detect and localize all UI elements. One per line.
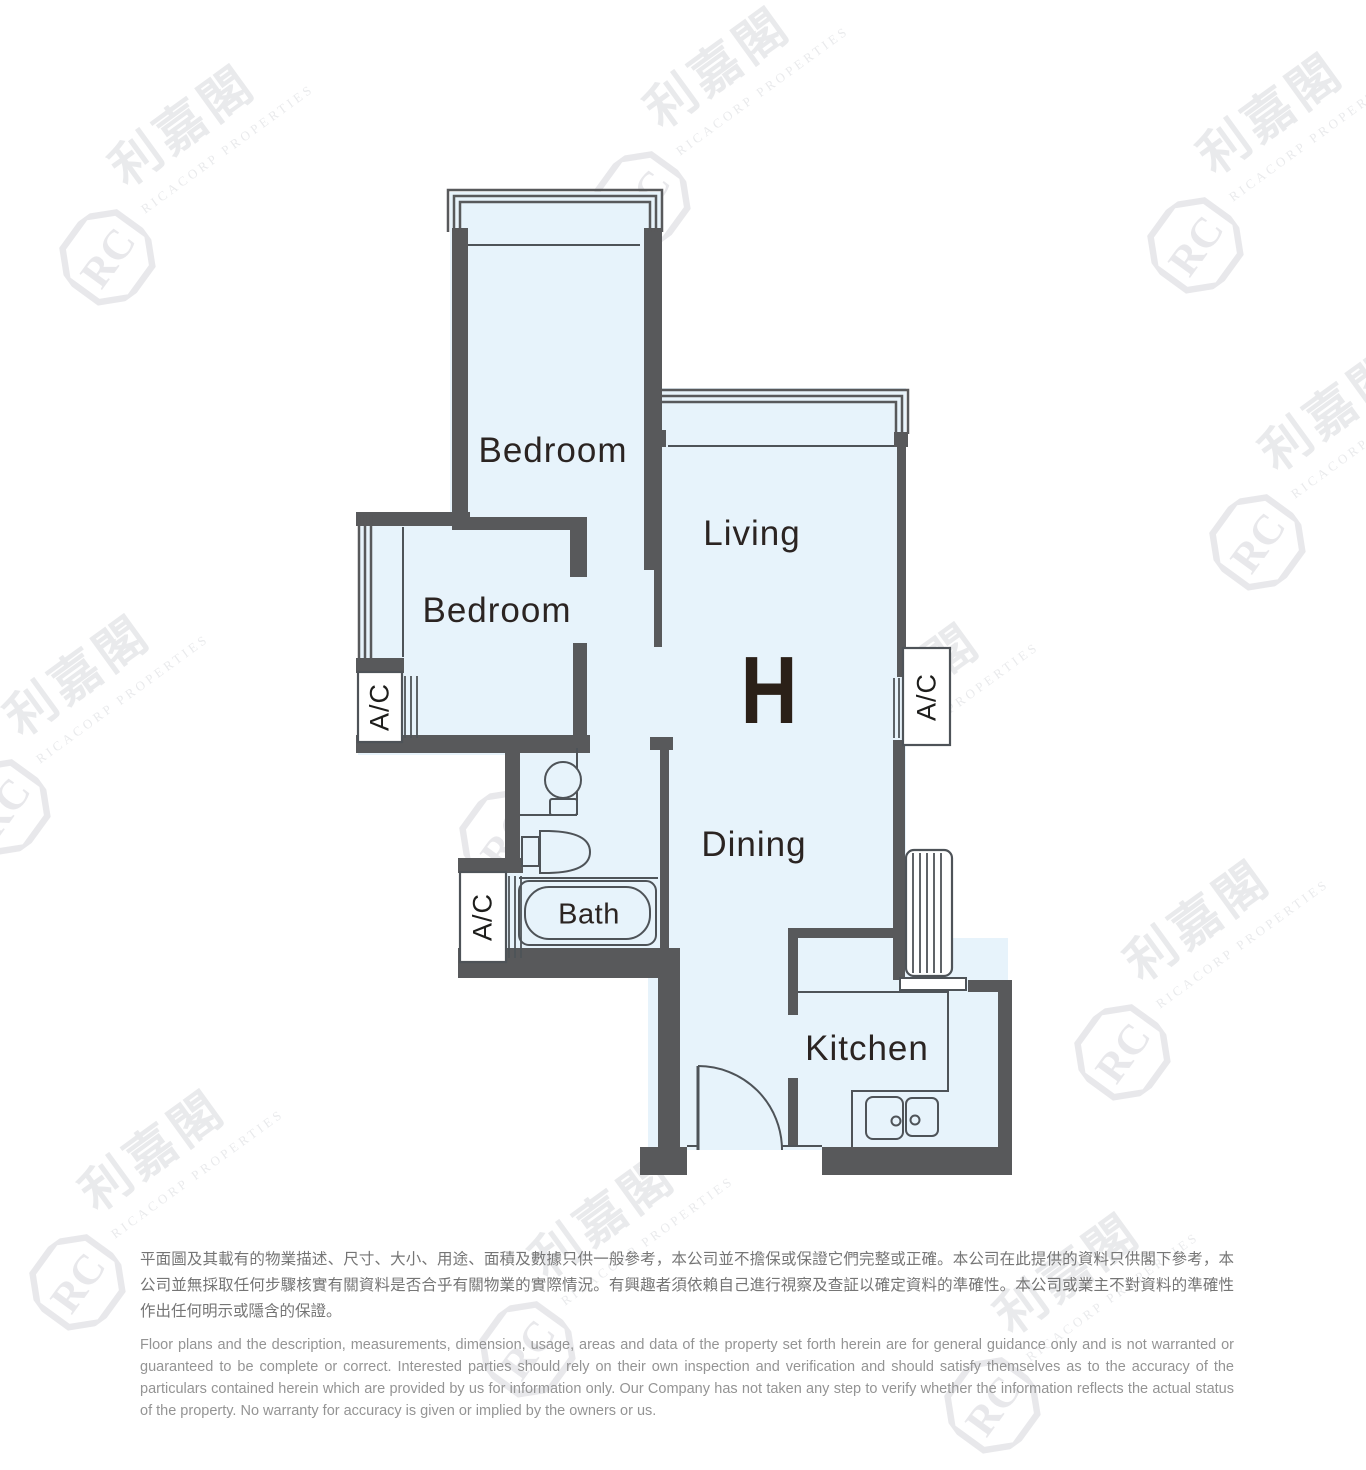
room-label-living: Living bbox=[703, 514, 800, 554]
toilet-tank bbox=[550, 799, 577, 815]
room-label-dining: Dining bbox=[701, 825, 806, 865]
disclaimer-text-chinese: 平面圖及其載有的物業描述、尺寸、大小、用途、面積及數據只供一般參考，本公司並不擔… bbox=[140, 1247, 1234, 1325]
room-label-kitchen: Kitchen bbox=[805, 1029, 929, 1069]
ac-label: A/C bbox=[468, 893, 499, 941]
room-label-bedroom-mid: Bedroom bbox=[422, 591, 571, 631]
disclaimer-text-english: Floor plans and the description, measure… bbox=[140, 1334, 1234, 1422]
room-label-bedroom-top: Bedroom bbox=[478, 431, 627, 471]
room-label-bath: Bath bbox=[558, 899, 620, 932]
unit-letter-label: H bbox=[741, 636, 798, 746]
ac-label: A/C bbox=[365, 683, 396, 731]
toilet-bowl bbox=[545, 762, 581, 798]
disclaimer-block: 平面圖及其載有的物業描述、尺寸、大小、用途、面積及數據只供一般參考，本公司並不擔… bbox=[140, 1247, 1234, 1422]
ac-label: A/C bbox=[912, 673, 943, 721]
floor-plan-drawing bbox=[0, 0, 1366, 1366]
floor-plan-page: RC利嘉閣RICACORP PROPERTIESRC利嘉閣RICACORP PR… bbox=[0, 0, 1366, 1366]
